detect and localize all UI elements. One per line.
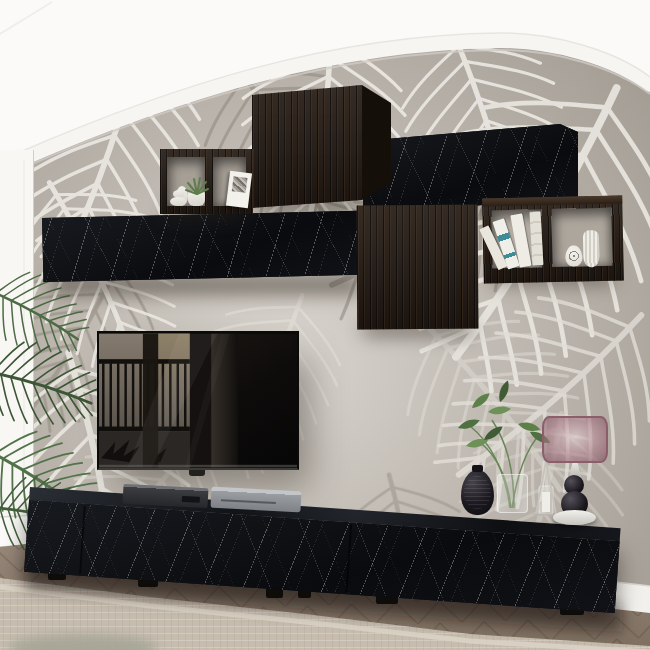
shelf-top-face: [482, 196, 622, 207]
wood-cube-cabinet-side: [362, 85, 392, 201]
vase-texture: [464, 476, 491, 509]
lamp-base: [553, 510, 596, 525]
marble-floating-cabinet: [42, 211, 369, 282]
vase-floral-pattern: [567, 249, 580, 262]
patterned-vase: [565, 245, 582, 266]
open-shelf-right: [482, 196, 624, 284]
shelf-compartment: [491, 209, 542, 268]
glass-vase: [497, 474, 528, 513]
vase-neck: [472, 465, 483, 472]
sketch-drawing: [232, 176, 248, 193]
book: [529, 211, 543, 266]
wood-cube-cabinet: [252, 85, 362, 209]
tv-screen: [97, 331, 299, 470]
shelf-compartment: [551, 208, 612, 267]
dvd-display: [182, 496, 200, 503]
black-vase: [461, 470, 494, 515]
tv-wall-mount: [189, 470, 205, 476]
tv-reflection: [99, 333, 297, 468]
open-shelf-left: [160, 149, 253, 214]
lamp-shade: [542, 416, 608, 463]
living-room-scene: [0, 0, 650, 650]
ribbed-vase: [583, 230, 600, 267]
succulent-leaves: [184, 175, 210, 195]
table-lamp: [540, 414, 610, 526]
art-print: [226, 171, 252, 208]
wood-wall-cabinet: [357, 205, 479, 330]
disc-slot: [221, 499, 276, 504]
pebble-stack: [170, 197, 186, 206]
